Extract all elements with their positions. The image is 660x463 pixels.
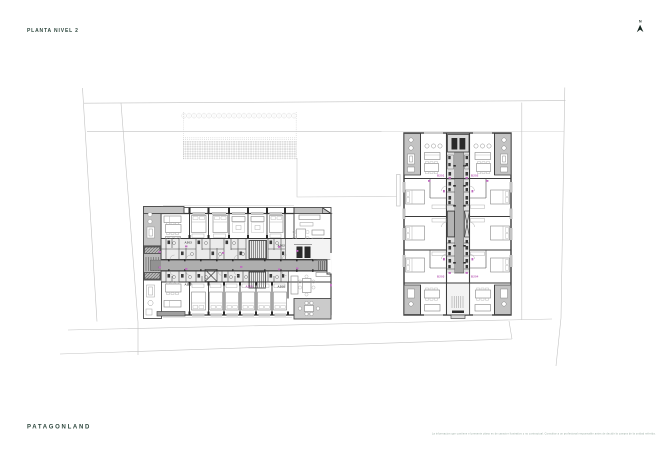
svg-text:A205: A205 <box>246 285 254 289</box>
svg-text:La informacion que contiene el: La informacion que contiene el presente … <box>432 433 656 436</box>
svg-text:B204: B204 <box>471 275 479 279</box>
svg-text:PATAGONLAND: PATAGONLAND <box>27 425 91 431</box>
svg-text:B201: B201 <box>437 174 445 178</box>
svg-text:PLANTA NIVEL 2: PLANTA NIVEL 2 <box>27 28 79 34</box>
svg-text:A203: A203 <box>185 241 193 245</box>
svg-text:A207: A207 <box>185 283 193 287</box>
svg-text:B203: B203 <box>437 275 445 279</box>
svg-text:A206: A206 <box>278 285 286 289</box>
svg-text:N: N <box>639 20 642 24</box>
svg-text:B202: B202 <box>471 174 479 178</box>
